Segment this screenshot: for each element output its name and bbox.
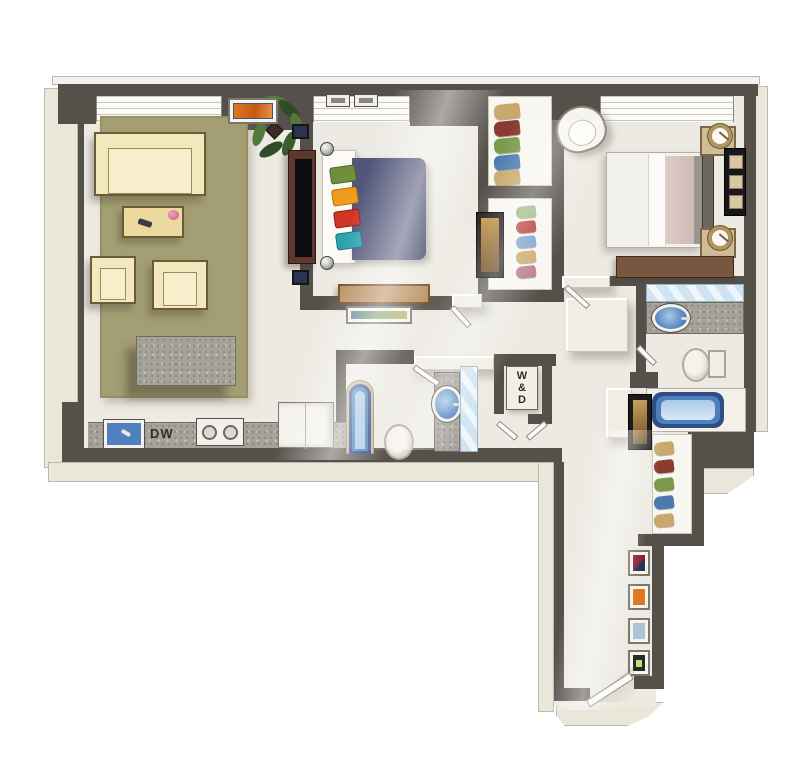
armchair-2 [152,260,208,310]
ensuite-sink [652,304,690,332]
washer-dryer: W & D [506,366,538,410]
art-canvas [633,400,647,444]
midbath-bathtub [349,384,371,454]
folded-linen [653,477,674,492]
round-armchair-seat [565,116,600,149]
gallery-frame-4 [628,650,650,676]
pillow-green [329,164,357,184]
armchair-2-seat [163,272,197,306]
lamp-finial [719,131,729,140]
wall-hall-right [652,546,664,682]
folded-linen [515,220,536,234]
folded-linen [493,169,520,187]
tub-basin [661,400,715,420]
wall-closet-mid [478,186,562,198]
lintel-bath-door [414,356,494,370]
folded-linen [515,205,536,219]
bench [338,284,430,304]
washer-dryer-label: W & D [517,370,527,406]
window-bedroom2 [600,96,734,122]
folded-linen [653,441,674,456]
wall-bottom [62,448,562,462]
console-art-canvas [233,103,273,119]
fridge-door-line [305,403,306,449]
wall-art-hall-top [628,394,652,450]
bed2-fold [648,154,666,246]
outer-face-right [754,86,768,432]
folded-linen [493,137,520,155]
art-canvas [351,311,407,319]
wall-linen-right [692,436,704,540]
bedroom-dresser [616,256,734,278]
wall-bath-top [336,350,414,364]
wall-top [58,84,758,96]
table-lamp-2 [708,226,732,250]
wall-right [744,84,756,432]
coffee-table [122,206,184,238]
art-canvas [481,218,499,272]
wall-art-small-bottom [292,270,309,285]
wall-art-bench [346,306,412,324]
midbath-toilet [384,424,414,460]
burner-2 [223,425,238,440]
ensuite-mirror [646,284,744,302]
folded-linen [493,103,520,121]
sink-faucet [681,317,689,320]
folded-linen [653,513,674,528]
armchair-1 [90,256,136,304]
tub-basin [355,391,365,449]
lamp-finial [719,233,729,242]
vent-grille [359,98,373,103]
cooktop [196,418,244,446]
tv-console [288,150,316,264]
armchair-1-seat [100,268,126,300]
wall-linen-bottom [638,534,704,546]
sofa-seat [108,148,192,194]
pillow-teal [335,230,363,250]
bedpost-2 [320,256,334,270]
ensuite-toilet-bowl [682,348,710,382]
folded-linen [515,250,536,264]
wall-art-bed2 [724,148,746,216]
flower-vase [168,210,179,220]
refrigerator [278,402,334,448]
gallery-frame-3 [628,618,650,644]
wall-hall-left-foot [554,688,590,701]
art-panel [729,155,743,169]
wall-pier-2 [410,96,480,126]
art-canvas [633,589,645,605]
pillow-red [333,208,361,228]
kitchen-sink [104,420,144,448]
remote-items [137,218,152,228]
art-accent [636,660,642,667]
lintel-bedroom1-door [452,294,482,308]
dishwasher-label: DW [150,426,174,441]
sofa [94,132,206,196]
bedpost-1 [320,142,334,156]
kitchen-island [136,336,236,386]
art-panel [729,175,743,189]
table-lamp-1 [708,124,732,148]
wall-left [78,120,84,420]
wall-hall-right-foot [634,676,664,689]
bed2-blush-pillows [666,156,696,244]
wall-art-small-top [292,124,309,139]
wall-closet-bottom [478,290,564,302]
art-canvas [633,555,645,571]
flat-screen-tv [295,159,312,257]
wall-hall-left [554,462,564,690]
folded-linen [515,235,536,249]
folded-linen [653,459,674,474]
ceiling-vent-1 [326,94,350,107]
wall-art-closet [476,212,504,278]
pillow-orange [331,186,359,206]
ensuite-bathtub [652,392,724,428]
outer-face-bottom [48,462,574,482]
wall-pier-corner-left [58,96,96,124]
art-panel [729,195,743,209]
ceiling-vent-2 [354,94,378,107]
console-art [228,98,278,124]
bed1-duvet-navy [352,158,426,260]
midbath-sink [432,386,462,422]
folded-linen [493,120,520,138]
vent-grille [331,98,345,103]
burner-1 [202,425,217,440]
wall-cap-corridor [566,298,628,352]
floor-plan: DW [0,0,799,768]
gallery-frame-1 [628,550,650,576]
ensuite-toilet-tank [708,350,726,378]
gallery-frame-2 [628,584,650,610]
folded-linen [515,265,536,279]
outer-face-hall-left [538,462,554,712]
midbath-mirror [460,366,478,452]
wall-ensuite-left [636,276,646,382]
art-canvas [633,623,645,639]
wall-wd-left [494,354,504,414]
wall-ensuite-step [630,372,658,388]
folded-linen [653,495,674,510]
sink-faucet [121,429,132,437]
